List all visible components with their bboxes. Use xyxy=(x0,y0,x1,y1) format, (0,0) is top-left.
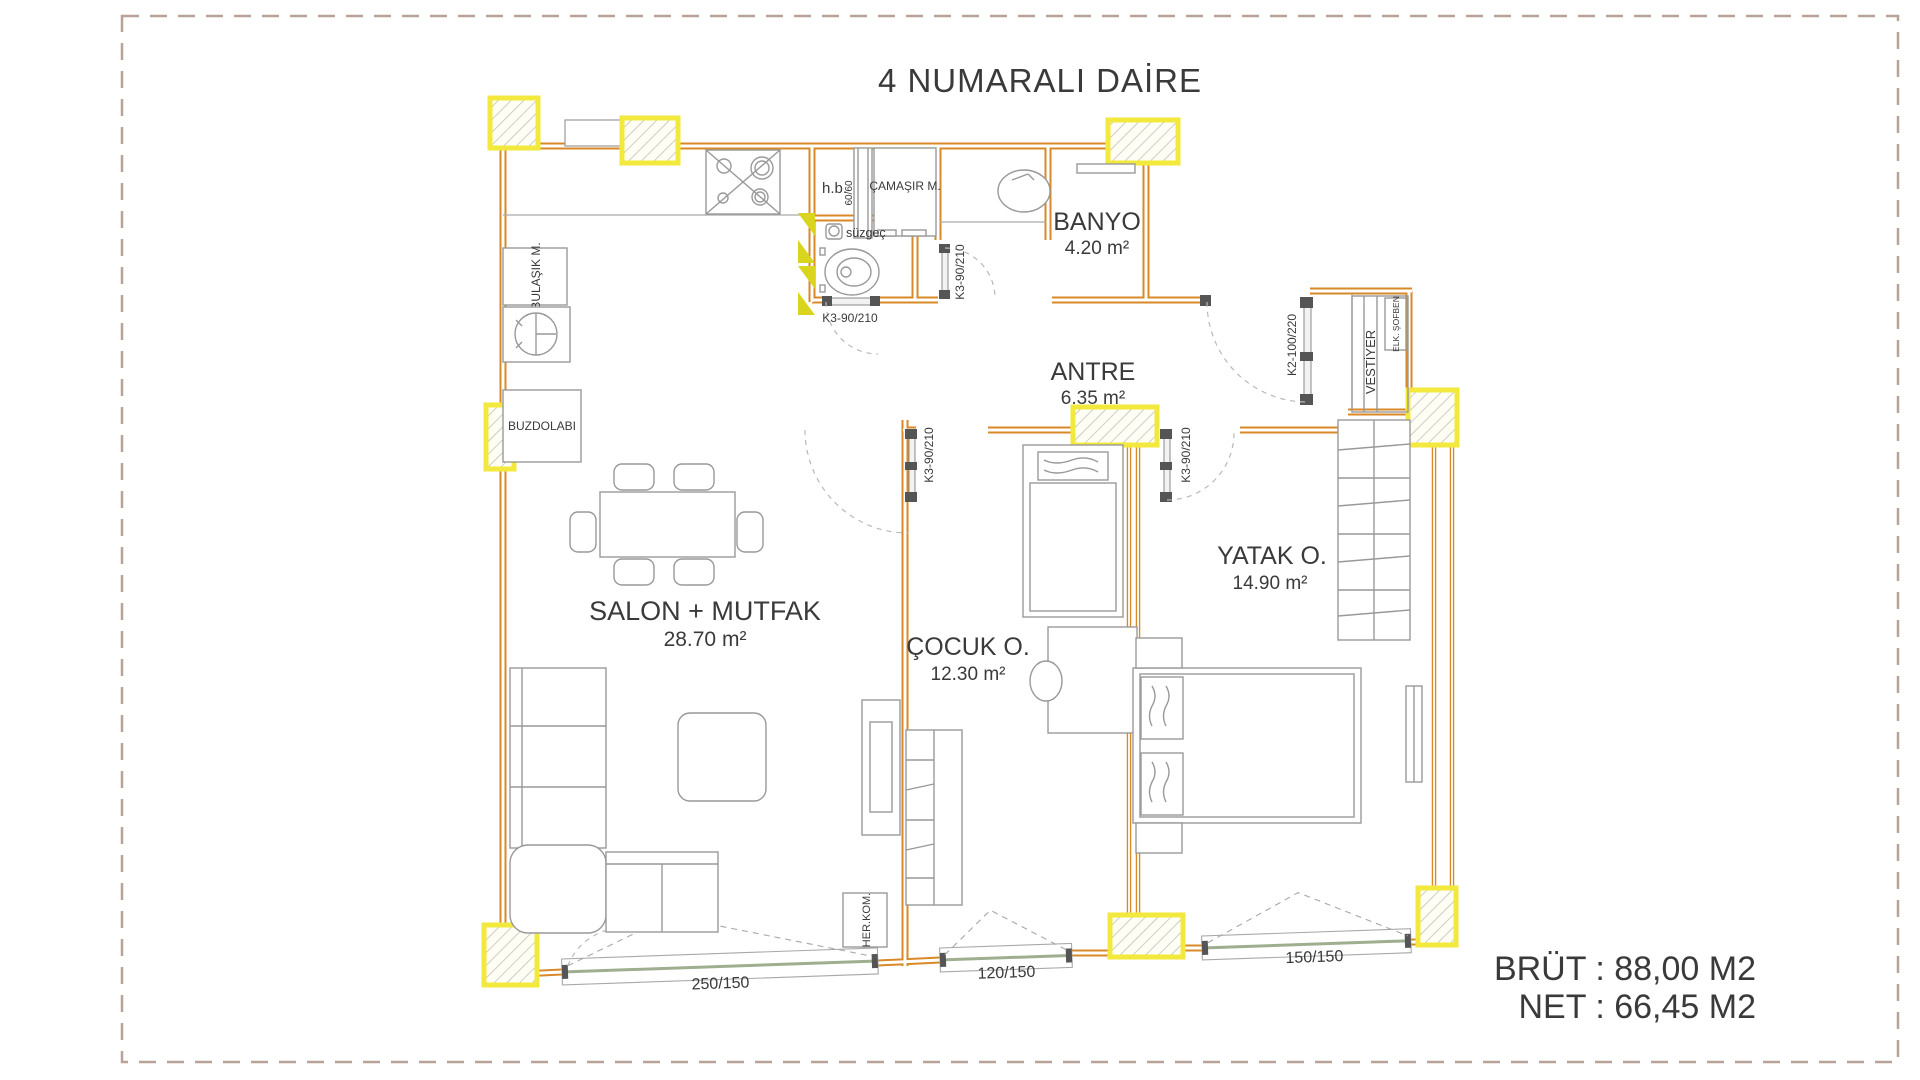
yatak-wardrobe xyxy=(1338,420,1410,640)
boiler-niche: HER.KOM. xyxy=(843,893,887,947)
dishwasher: BULAŞIK M. xyxy=(503,242,567,309)
banyo-area: 4.20 m² xyxy=(1065,238,1129,259)
antre-name: ANTRE xyxy=(1051,358,1136,386)
yatak-area: 14.90 m² xyxy=(1233,573,1308,594)
desk xyxy=(1030,627,1137,733)
radiator xyxy=(1406,686,1422,782)
floor-drain-label: süzgeç xyxy=(846,226,886,240)
salon-area: 28.70 m² xyxy=(664,628,747,651)
salon-name: SALON + MUTFAK xyxy=(589,596,821,626)
column-bottom-mid xyxy=(1110,915,1183,957)
single-bed xyxy=(1023,445,1123,617)
column-antre xyxy=(1073,407,1157,445)
double-bed xyxy=(1133,668,1361,823)
cocuk-area: 12.30 m² xyxy=(931,664,1006,685)
window-cocuk-size: 120/150 xyxy=(977,964,1035,983)
fridge: BUZDOLABI xyxy=(503,390,581,462)
salon-furniture xyxy=(510,464,900,933)
tv-unit xyxy=(862,700,900,835)
shower-unit: 60/60 xyxy=(844,148,872,238)
column-bottom-left xyxy=(484,925,537,985)
washing-machine: ÇAMAŞIR M. xyxy=(869,148,940,236)
boiler-label: HER.KOM. xyxy=(861,893,873,947)
antre-area: 6.35 m² xyxy=(1061,388,1125,409)
nightstand-top xyxy=(1136,638,1182,668)
net-area: NET : 66,45 M2 xyxy=(1519,988,1757,1026)
nightstand-bottom xyxy=(1136,823,1182,853)
vestiyer-label: VESTİYER xyxy=(1363,330,1378,394)
coffee-table xyxy=(678,713,766,801)
column-top-mid xyxy=(622,118,678,163)
yatak-name: YATAK O. xyxy=(1217,542,1327,570)
window-yatak: 150/150 xyxy=(1200,889,1411,970)
column-top-right xyxy=(1108,120,1178,163)
door-cocuk-label: K3-90/210 xyxy=(922,427,936,483)
stove xyxy=(706,150,780,214)
door-wc: K3-90/210 xyxy=(822,296,880,354)
door-wc-label: K3-90/210 xyxy=(822,311,878,325)
door-banyo: K3-90/210 xyxy=(939,244,995,300)
column-bottom-right xyxy=(1418,888,1456,945)
vent-shaft xyxy=(565,120,622,146)
door-entry-label: K2-100/220 xyxy=(1285,314,1299,376)
fridge-label: BUZDOLABI xyxy=(508,419,576,433)
water-heater-label: ELK. ŞOFBEN xyxy=(1391,296,1401,352)
gross-area: BRÜT : 88,00 M2 xyxy=(1494,950,1756,988)
floor-plan-sheet: 4 NUMARALI DAİRE xyxy=(0,0,1920,1080)
banyo-room xyxy=(1077,164,1135,173)
column-right-entry xyxy=(1408,390,1457,445)
cocuk-wardrobe xyxy=(906,730,962,905)
vestiyer: VESTİYER ELK. ŞOFBEN xyxy=(1352,296,1408,412)
towel-rail xyxy=(1077,164,1135,173)
area-totals: BRÜT : 88,00 M2 NET : 66,45 M2 xyxy=(1494,950,1756,1026)
toilet xyxy=(820,248,879,295)
washing-machine-label: ÇAMAŞIR M. xyxy=(869,179,940,193)
bath-sink xyxy=(998,170,1050,212)
floor-drain: süzgeç xyxy=(826,224,886,240)
shower-size-label: 60/60 xyxy=(844,180,855,205)
door-yatak-label: K3-90/210 xyxy=(1179,427,1193,483)
column-top-left xyxy=(490,98,538,148)
floor-plan-canvas: 4 NUMARALI DAİRE xyxy=(0,0,1920,1080)
kitchen-sink xyxy=(503,307,570,362)
window-salon-size: 250/150 xyxy=(691,974,749,993)
dishwasher-label: BULAŞIK M. xyxy=(529,242,543,309)
dining-table xyxy=(570,464,763,585)
banyo-name: BANYO xyxy=(1053,208,1141,236)
bath-anteroom xyxy=(998,170,1050,212)
cocuk-name: ÇOCUK O. xyxy=(906,633,1030,661)
door-banyo-label: K3-90/210 xyxy=(953,244,967,300)
page-title: 4 NUMARALI DAİRE xyxy=(878,62,1202,99)
door-entry: K2-100/220 xyxy=(1200,295,1313,405)
door-yatak: K3-90/210 xyxy=(1160,427,1234,502)
door-cocuk: K3-90/210 xyxy=(805,427,936,533)
window-cocuk: 120/150 xyxy=(938,907,1072,984)
yatak-furniture xyxy=(1133,420,1422,853)
window-yatak-size: 150/150 xyxy=(1285,948,1343,967)
kitchen: BULAŞIK M. BUZDOLABI xyxy=(503,150,780,462)
